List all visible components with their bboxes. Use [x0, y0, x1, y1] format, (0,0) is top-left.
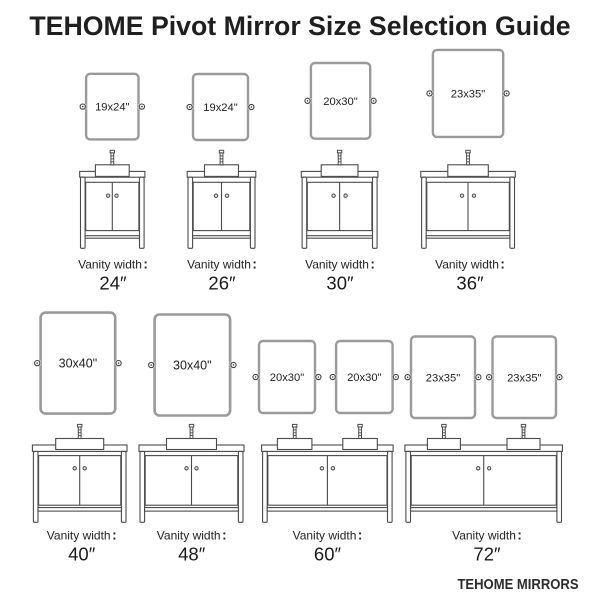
svg-text:30x40": 30x40": [59, 357, 98, 371]
svg-text:30x40": 30x40": [173, 359, 212, 373]
svg-text:Vanity width:: Vanity width:: [47, 528, 117, 543]
svg-text:26″: 26″: [208, 273, 236, 294]
svg-text:36″: 36″: [456, 273, 484, 294]
svg-text:48″: 48″: [178, 544, 206, 565]
svg-text:60″: 60″: [314, 544, 342, 565]
svg-text:20x30": 20x30": [347, 372, 381, 384]
svg-text:19x24": 19x24": [95, 102, 129, 114]
svg-text:24″: 24″: [99, 273, 127, 294]
svg-text:23x35": 23x35": [451, 88, 485, 100]
svg-text:Vanity width:: Vanity width:: [157, 528, 227, 543]
svg-text:Vanity width:: Vanity width:: [78, 257, 148, 272]
svg-text:Vanity width:: Vanity width:: [435, 257, 505, 272]
svg-text:40″: 40″: [68, 544, 96, 565]
svg-text:72″: 72″: [473, 544, 501, 565]
svg-text:20x30": 20x30": [323, 96, 357, 108]
svg-text:23x35": 23x35": [426, 372, 460, 384]
svg-text:19x24": 19x24": [203, 102, 237, 114]
svg-text:20x30": 20x30": [270, 372, 304, 384]
svg-text:30″: 30″: [326, 273, 354, 294]
svg-text:Vanity width:: Vanity width:: [293, 528, 363, 543]
svg-text:Vanity width:: Vanity width:: [305, 257, 375, 272]
svg-text:Vanity width:: Vanity width:: [187, 257, 257, 272]
svg-text:Vanity width:: Vanity width:: [452, 528, 522, 543]
svg-text:23x35": 23x35": [507, 372, 541, 384]
